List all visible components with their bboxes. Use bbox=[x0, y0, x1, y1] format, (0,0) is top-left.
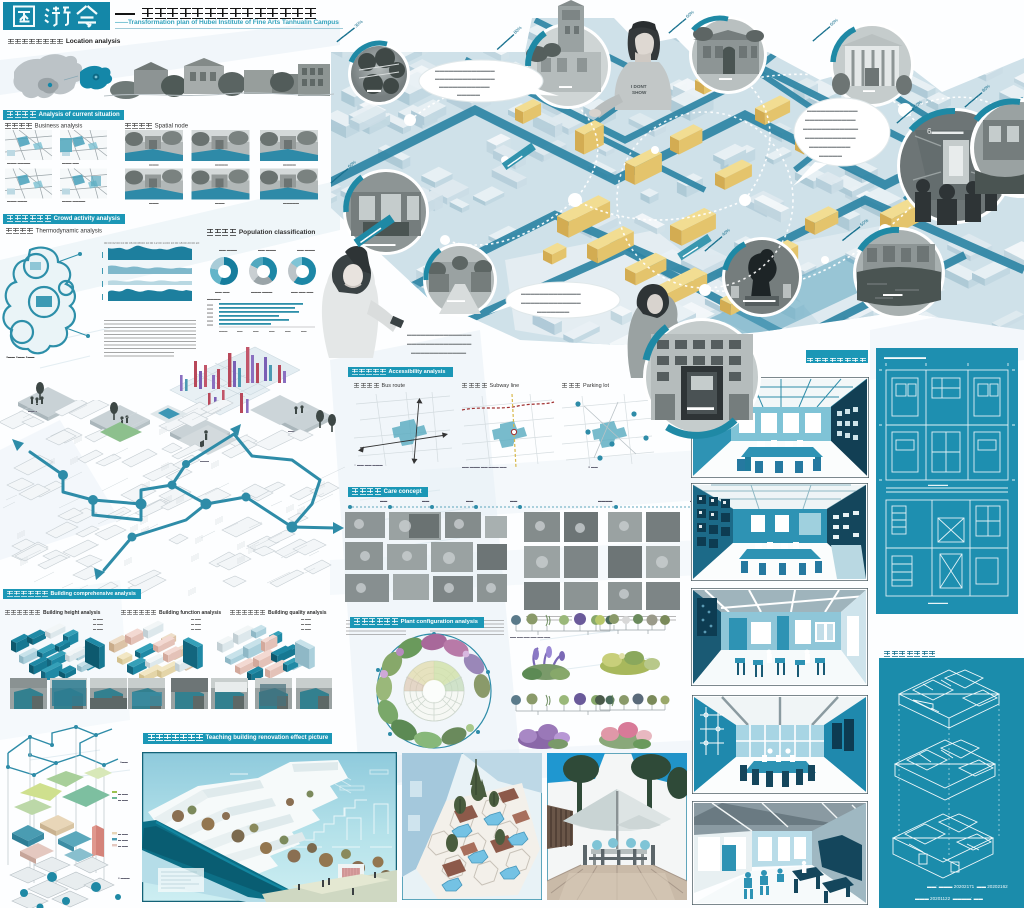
svg-text:▬▬: ▬▬ bbox=[380, 499, 388, 503]
svg-text:▬ ▬▬: ▬ ▬▬ bbox=[93, 622, 103, 626]
svg-text:▬▬ ▬▬▬: ▬▬ ▬▬▬ bbox=[258, 248, 277, 252]
svg-text:▬ ▬▬: ▬ ▬▬ bbox=[301, 622, 311, 626]
svg-text:▬▬▬▬▬ 50%: ▬▬▬▬▬ 50% bbox=[840, 218, 869, 242]
svg-text:▬ ▬▬: ▬ ▬▬ bbox=[191, 617, 201, 621]
svg-text:▬▬▬▬: ▬▬▬▬ bbox=[215, 163, 229, 167]
svg-text:▬▬▬▬: ▬▬▬▬ bbox=[283, 163, 297, 167]
svg-text:▬▬▬▬▬▬▬▬▬▬▬▬▬▬: ▬▬▬▬▬▬▬▬▬▬▬▬▬▬ bbox=[407, 341, 472, 346]
svg-text:▬ ▬▬: ▬ ▬▬ bbox=[191, 622, 201, 626]
svg-text:▬ ▬▬: ▬ ▬▬ bbox=[301, 627, 311, 631]
svg-text:▬▬▬▬▬: ▬▬▬▬▬ bbox=[283, 201, 300, 205]
svg-text:▬▬: ▬▬ bbox=[863, 88, 875, 94]
svg-text:▬▬: ▬▬ bbox=[253, 329, 259, 333]
svg-text:▬▬ ▬▬: ▬▬ ▬▬ bbox=[215, 290, 230, 294]
svg-text:▬▬▬▬▬: ▬▬▬▬▬ bbox=[743, 297, 776, 304]
svg-text:▬▬▬▬▬▬▬▬▬▬▬: ▬▬▬▬▬▬▬▬▬▬▬ bbox=[439, 84, 490, 89]
svg-text:▬ ▬▬: ▬ ▬▬ bbox=[118, 798, 128, 802]
svg-text:▬▬▬▬▬▬▬▬▬▬▬▬▬: ▬▬▬▬▬▬▬▬▬▬▬▬▬ bbox=[435, 68, 495, 73]
svg-text:▬▬▬▬▬: ▬▬▬▬▬ bbox=[363, 241, 396, 248]
svg-text:▬▬ ▬▬▬: ▬▬ ▬▬▬ bbox=[219, 248, 238, 252]
svg-text:▬▬▬▬▬: ▬▬▬▬▬ bbox=[928, 600, 948, 605]
svg-text:▬▬: ▬▬ bbox=[101, 268, 105, 274]
svg-text:▬▬: ▬▬ bbox=[510, 499, 518, 503]
svg-text:▬▬▬▬▬▬▬: ▬▬▬▬▬▬▬ bbox=[537, 309, 570, 314]
svg-text:▬▬: ▬▬▬ 20202171 ▬▬ 20202162: ▬▬: ▬▬▬ 20202171 ▬▬ 20202162 bbox=[927, 884, 1008, 889]
svg-text:▬▬▬▬▬ 80%: ▬▬▬▬▬ 80% bbox=[495, 25, 523, 51]
svg-text:●▬▬: ●▬▬ bbox=[120, 760, 128, 764]
svg-text:▬▬▬▬▬▬▬▬▬▬▬: ▬▬▬▬▬▬▬▬▬▬▬ bbox=[805, 117, 856, 122]
svg-text:▬ ▬▬: ▬ ▬▬ bbox=[118, 792, 128, 796]
svg-text:▬▬▬▬▬▬▬▬▬▬▬▬▬: ▬▬▬▬▬▬▬▬▬▬▬▬▬ bbox=[435, 76, 495, 81]
svg-text:SHOW: SHOW bbox=[632, 90, 647, 95]
svg-text:▬▬▬: ▬▬▬ bbox=[219, 329, 228, 333]
svg-text:▬▬▬▬▬ 60%: ▬▬▬▬▬ 60% bbox=[667, 9, 695, 34]
svg-text:▬ ▬▬: ▬ ▬▬ bbox=[93, 617, 103, 621]
svg-text:▬▬: ▬▬ bbox=[719, 75, 733, 82]
svg-text:▬▬▬▬: ▬▬▬▬ bbox=[598, 499, 613, 503]
svg-text:▬▬▬▬▬ 60%: ▬▬▬▬▬ 60% bbox=[329, 159, 357, 184]
svg-text:▬▬▬: ▬▬▬ bbox=[447, 298, 465, 304]
svg-text:▬▬: ▬▬ bbox=[466, 499, 474, 503]
svg-text:▬▬: ▬▬ bbox=[559, 83, 573, 90]
svg-text:▬▬▬ ▬▬▬▬: ▬▬▬ ▬▬▬▬ bbox=[7, 161, 31, 165]
svg-text:● ▬▬: ● ▬▬ bbox=[588, 465, 598, 469]
svg-text:▬▬▬▬▬: ▬▬▬▬▬ bbox=[928, 482, 948, 487]
svg-text:▬▬: ▬▬ bbox=[101, 281, 105, 287]
svg-text:▬▬ ▬▬ ▬▬ ▬▬ ▬▬ ▬▬: ▬▬ ▬▬ ▬▬ ▬▬ ▬▬ ▬▬ bbox=[510, 635, 550, 639]
svg-text:▬ ▬▬: ▬ ▬▬ bbox=[93, 627, 103, 631]
svg-text:● ▬▬▬: ● ▬▬▬ bbox=[118, 876, 130, 880]
svg-text:▬▬: ▬▬ bbox=[207, 323, 213, 327]
svg-text:▬▬▬ ▬▬▬: ▬▬▬ ▬▬▬ bbox=[7, 199, 28, 202]
svg-text:▬▬▬ ▬▬▬: ▬▬▬ ▬▬▬ bbox=[251, 290, 273, 294]
svg-text:▬▬▬▬▬▬▬▬▬▬▬▬: ▬▬▬▬▬▬▬▬▬▬▬▬ bbox=[411, 350, 467, 355]
svg-text:○ ▬▬ ▬▬ ▬▬▬: ○ ▬▬ ▬▬ ▬▬▬ bbox=[354, 463, 383, 467]
svg-text:▬ ▬▬: ▬ ▬▬ bbox=[118, 838, 128, 842]
svg-text:▬▬ ▬▬▬ ▬▬ ▬▬▬ ▬▬: ▬▬ ▬▬▬ ▬▬ ▬▬▬ ▬▬ bbox=[462, 465, 507, 469]
svg-text:▬ ▬▬: ▬ ▬▬ bbox=[191, 627, 201, 631]
svg-text:▬▬: ▬▬ bbox=[101, 252, 105, 258]
svg-text:▬ ▬▬: ▬ ▬▬ bbox=[118, 832, 128, 836]
svg-text:▬▬▬ ▬▬▬▬: ▬▬▬ ▬▬▬▬ bbox=[62, 199, 86, 202]
svg-text:▬▬▬ ▬▬: ▬▬▬ ▬▬ bbox=[62, 161, 80, 165]
svg-text:▬▬▬▬▬ 60%: ▬▬▬▬▬ 60% bbox=[811, 17, 839, 42]
svg-text:▬ ▬▬: ▬ ▬▬ bbox=[118, 844, 128, 848]
svg-text:▬▬▬▬▬▬▬▬▬▬▬▬: ▬▬▬▬▬▬▬▬▬▬▬▬ bbox=[803, 126, 859, 131]
svg-text:▬▬: ▬▬ bbox=[422, 499, 430, 503]
svg-text:▬▬▬▬▬▬▬▬▬: ▬▬▬▬▬▬▬▬▬ bbox=[809, 144, 851, 149]
svg-text:▬▬▬ 20201122 ▬▬▬▬: ▬▬: ▬▬▬ 20201122 ▬▬▬▬: ▬▬ bbox=[915, 896, 983, 901]
svg-text:▬▬▬▬▬ 30%: ▬▬▬▬▬ 30% bbox=[335, 19, 364, 43]
svg-text:▬▬▬▬▬ 80%: ▬▬▬▬▬ 80% bbox=[963, 83, 991, 108]
svg-text:▬▬ ▬▬ ▬▬: ▬▬ ▬▬ ▬▬ bbox=[291, 290, 314, 294]
svg-text:▬▬: ▬▬ bbox=[301, 329, 307, 333]
svg-text:▬▬: ▬▬ bbox=[237, 329, 243, 333]
svg-text:▬▬▬: ▬▬▬ bbox=[149, 163, 159, 167]
svg-text:00:00 02:00 04:00 06:00 08:00: 00:00 02:00 04:00 06:00 08:00 10:00 12:0… bbox=[104, 241, 200, 245]
svg-text:▬▬▬: ▬▬▬ bbox=[687, 402, 714, 412]
svg-text:I DONT: I DONT bbox=[631, 84, 647, 89]
svg-text:▬▬▬▬▬▬▬▬▬▬▬: ▬▬▬▬▬▬▬▬▬▬▬ bbox=[805, 135, 856, 140]
svg-text:▬▬▬: ▬▬▬ bbox=[215, 201, 225, 205]
svg-text:▬▬▬▬▬▬▬▬▬▬▬▬▬▬: ▬▬▬▬▬▬▬▬▬▬▬▬▬▬ bbox=[407, 332, 472, 337]
svg-text:▬▬▬: ▬▬▬ bbox=[149, 201, 159, 205]
svg-text:▬▬ ▬▬▬: ▬▬ ▬▬▬ bbox=[297, 248, 316, 252]
svg-text:▬▬▬▬▬: ▬▬▬▬▬ bbox=[457, 92, 480, 97]
svg-text:▬▬▬▬▬▬▬▬▬▬▬▬▬: ▬▬▬▬▬▬▬▬▬▬▬▬▬ bbox=[521, 291, 581, 296]
svg-text:▬▬▬▬▬▬▬▬▬▬▬▬▬: ▬▬▬▬▬▬▬▬▬▬▬▬▬ bbox=[521, 300, 581, 305]
svg-text:▬▬: ▬▬ bbox=[367, 87, 381, 94]
svg-text:▬▬▬▬▬▬▬▬▬▬▬: ▬▬▬▬▬▬▬▬▬▬▬ bbox=[807, 108, 858, 113]
svg-text:▬▬▬▬: ▬▬▬▬ bbox=[207, 297, 221, 301]
svg-text:6▬▬▬▬: 6▬▬▬▬ bbox=[927, 127, 963, 136]
svg-text:▬▬: ▬▬ bbox=[269, 329, 275, 333]
svg-text:▬▬: ▬▬ bbox=[285, 329, 291, 333]
svg-text:▬▬▬▬▬: ▬▬▬▬▬ bbox=[819, 153, 842, 158]
svg-text:▬▬: ▬▬ bbox=[101, 294, 105, 300]
svg-text:▬▬▬: ▬▬▬ bbox=[883, 291, 903, 298]
svg-text:▬ ▬▬: ▬ ▬▬ bbox=[301, 617, 311, 621]
svg-text:●▬▬ ●▬▬ ●▬▬: ●▬▬ ●▬▬ ●▬▬ bbox=[6, 355, 35, 359]
